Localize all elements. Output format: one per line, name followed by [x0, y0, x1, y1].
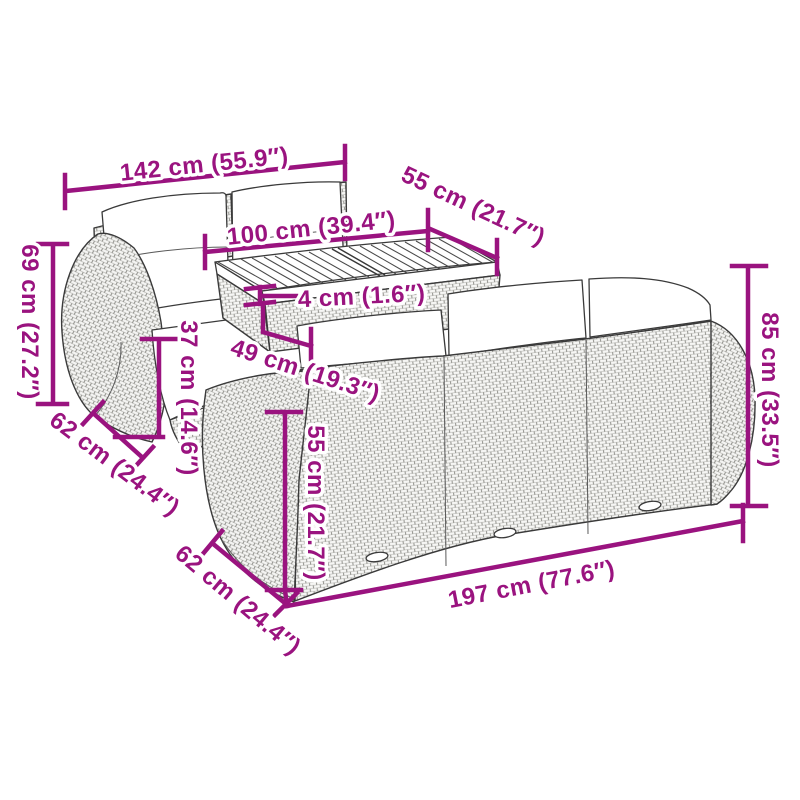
- dim-table-depth-label: 55 cm (21.7″): [397, 161, 549, 251]
- dim-sofa-left-width-label: 142 cm (55.9″): [119, 142, 290, 187]
- dim-sofa-right-height-label: 85 cm (33.5″): [756, 312, 783, 467]
- dim-seat-height-label: 37 cm (14.6″): [175, 320, 202, 475]
- diagram-canvas: 142 cm (55.9″) 100 cm (39.4″) 55 cm (21.…: [0, 0, 800, 800]
- dim-sofa-left-height-label: 69 cm (27.2″): [16, 244, 43, 399]
- dim-sofa-left-height: 69 cm (27.2″): [16, 244, 67, 404]
- dim-back-height-label: 55 cm (21.7″): [302, 425, 329, 580]
- dim-sofa-right-width-label: 197 cm (77.6″): [446, 555, 617, 614]
- right-sofa-back-panel: [295, 321, 717, 601]
- product-dimension-diagram: 142 cm (55.9″) 100 cm (39.4″) 55 cm (21.…: [0, 0, 800, 800]
